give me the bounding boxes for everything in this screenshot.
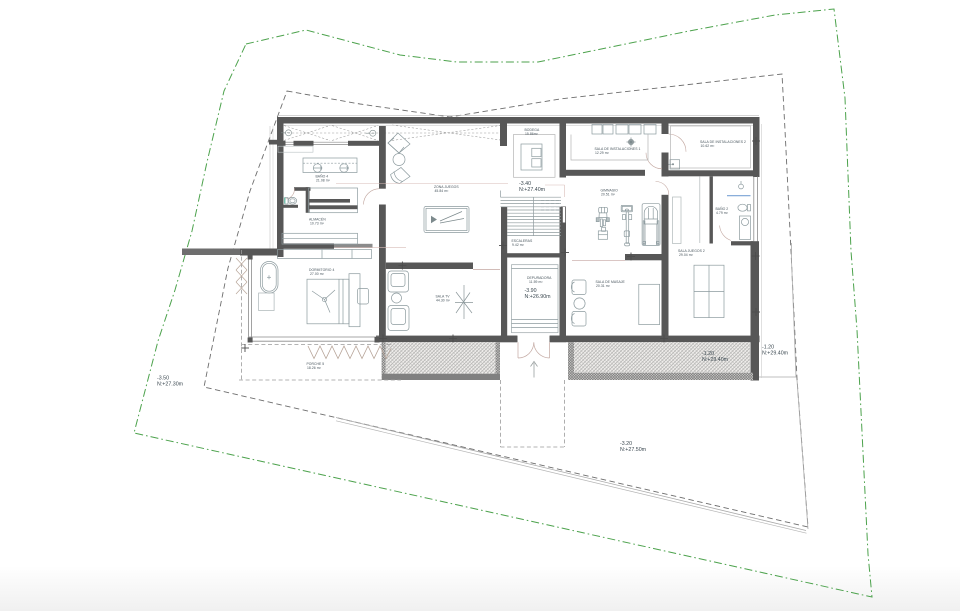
svg-text:45.84 m²: 45.84 m² bbox=[435, 189, 450, 193]
svg-text:N:+27.50m: N:+27.50m bbox=[620, 447, 647, 453]
svg-text:12.29 m²: 12.29 m² bbox=[595, 151, 610, 155]
svg-text:21.08 m²: 21.08 m² bbox=[316, 179, 331, 183]
svg-text:4.79 m²: 4.79 m² bbox=[716, 211, 729, 215]
svg-text:20.51 m²: 20.51 m² bbox=[601, 193, 616, 197]
svg-text:N:+26.90m: N:+26.90m bbox=[525, 294, 552, 300]
svg-text:29.04 m²: 29.04 m² bbox=[679, 253, 694, 257]
svg-text:11.59 m²: 11.59 m² bbox=[529, 280, 543, 284]
svg-text:10.62 m²: 10.62 m² bbox=[701, 144, 716, 148]
svg-text:27.00 m²: 27.00 m² bbox=[310, 272, 325, 276]
svg-text:18.26 m²: 18.26 m² bbox=[307, 366, 322, 370]
svg-text:N:+27.30m: N:+27.30m bbox=[157, 381, 184, 387]
svg-text:15.86m²: 15.86m² bbox=[525, 132, 539, 136]
svg-text:N:+29.40m: N:+29.40m bbox=[702, 357, 729, 363]
svg-text:9.42 m²: 9.42 m² bbox=[512, 243, 525, 247]
svg-text:N:+27.40m: N:+27.40m bbox=[519, 187, 546, 193]
svg-text:10.73 m²: 10.73 m² bbox=[310, 222, 325, 226]
svg-text:N:+29.40m: N:+29.40m bbox=[762, 350, 789, 356]
svg-text:44.30 m²: 44.30 m² bbox=[436, 299, 451, 303]
svg-text:20.31 m²: 20.31 m² bbox=[596, 284, 611, 288]
